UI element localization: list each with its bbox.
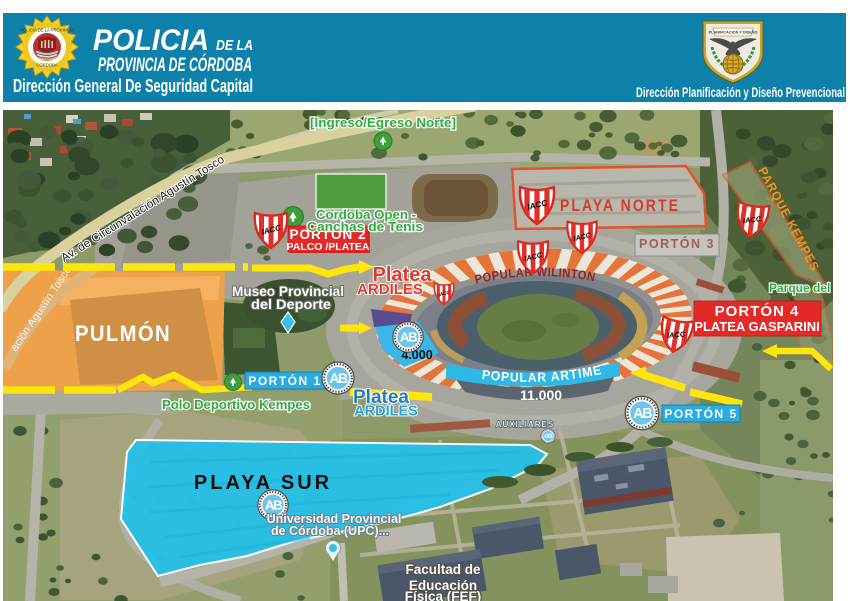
svg-text:PLATEA GASPARINI: PLATEA GASPARINI (694, 319, 819, 334)
svg-text:PROVINCIA DE CÓRDOBA: PROVINCIA DE CÓRDOBA (98, 54, 252, 76)
svg-text:POLICIA: POLICIA (93, 24, 209, 57)
svg-text:Dirección General De Seguridad: Dirección General De Seguridad Capital (13, 75, 253, 96)
svg-text:ARDILES: ARDILES (354, 404, 418, 420)
svg-text:PORTÓN 3: PORTÓN 3 (639, 236, 715, 251)
svg-text:[Ingreso/Egreso Norte]: [Ingreso/Egreso Norte] (310, 116, 456, 130)
svg-text:Polo Deportivo Kempes: Polo Deportivo Kempes (162, 398, 310, 412)
svg-text:Física (FEF): Física (FEF) (405, 589, 482, 601)
svg-text:PORTÓN 5: PORTÓN 5 (664, 406, 737, 421)
svg-text:del Deporte: del Deporte (251, 297, 332, 312)
svg-text:PLAYA NORTE: PLAYA NORTE (560, 196, 680, 215)
svg-text:PORTÓN 1: PORTÓN 1 (248, 373, 321, 388)
svg-text:PLANIFICACION Y DISEÑO: PLANIFICACION Y DISEÑO (709, 30, 758, 35)
svg-text:Dirección Planificación y Dise: Dirección Planificación y Diseño Prevenc… (636, 85, 845, 100)
svg-text:Parque del K: Parque del K (769, 281, 843, 295)
svg-text:PULMÓN: PULMÓN (75, 321, 171, 346)
svg-text:CORDOBA: CORDOBA (36, 63, 57, 68)
svg-text:PALCO /PLATEA: PALCO /PLATEA (286, 241, 369, 253)
svg-text:AUXILIARES: AUXILIARES (496, 420, 554, 429)
svg-text:de Córdoba (UPC)...: de Córdoba (UPC)... (271, 524, 389, 538)
svg-text:POLICIA DE LA PROVINCIA: POLICIA DE LA PROVINCIA (20, 28, 74, 33)
svg-text:ARDILES: ARDILES (357, 281, 423, 298)
svg-text:11.000: 11.000 (520, 387, 562, 403)
svg-text:DE LA: DE LA (216, 37, 253, 54)
svg-text:Canchas de Tenis: Canchas de Tenis (307, 219, 423, 234)
svg-text:Facultad de: Facultad de (405, 562, 481, 577)
svg-text:PLAYA SUR: PLAYA SUR (194, 472, 332, 494)
svg-text:PORTÓN 4: PORTÓN 4 (715, 302, 800, 320)
